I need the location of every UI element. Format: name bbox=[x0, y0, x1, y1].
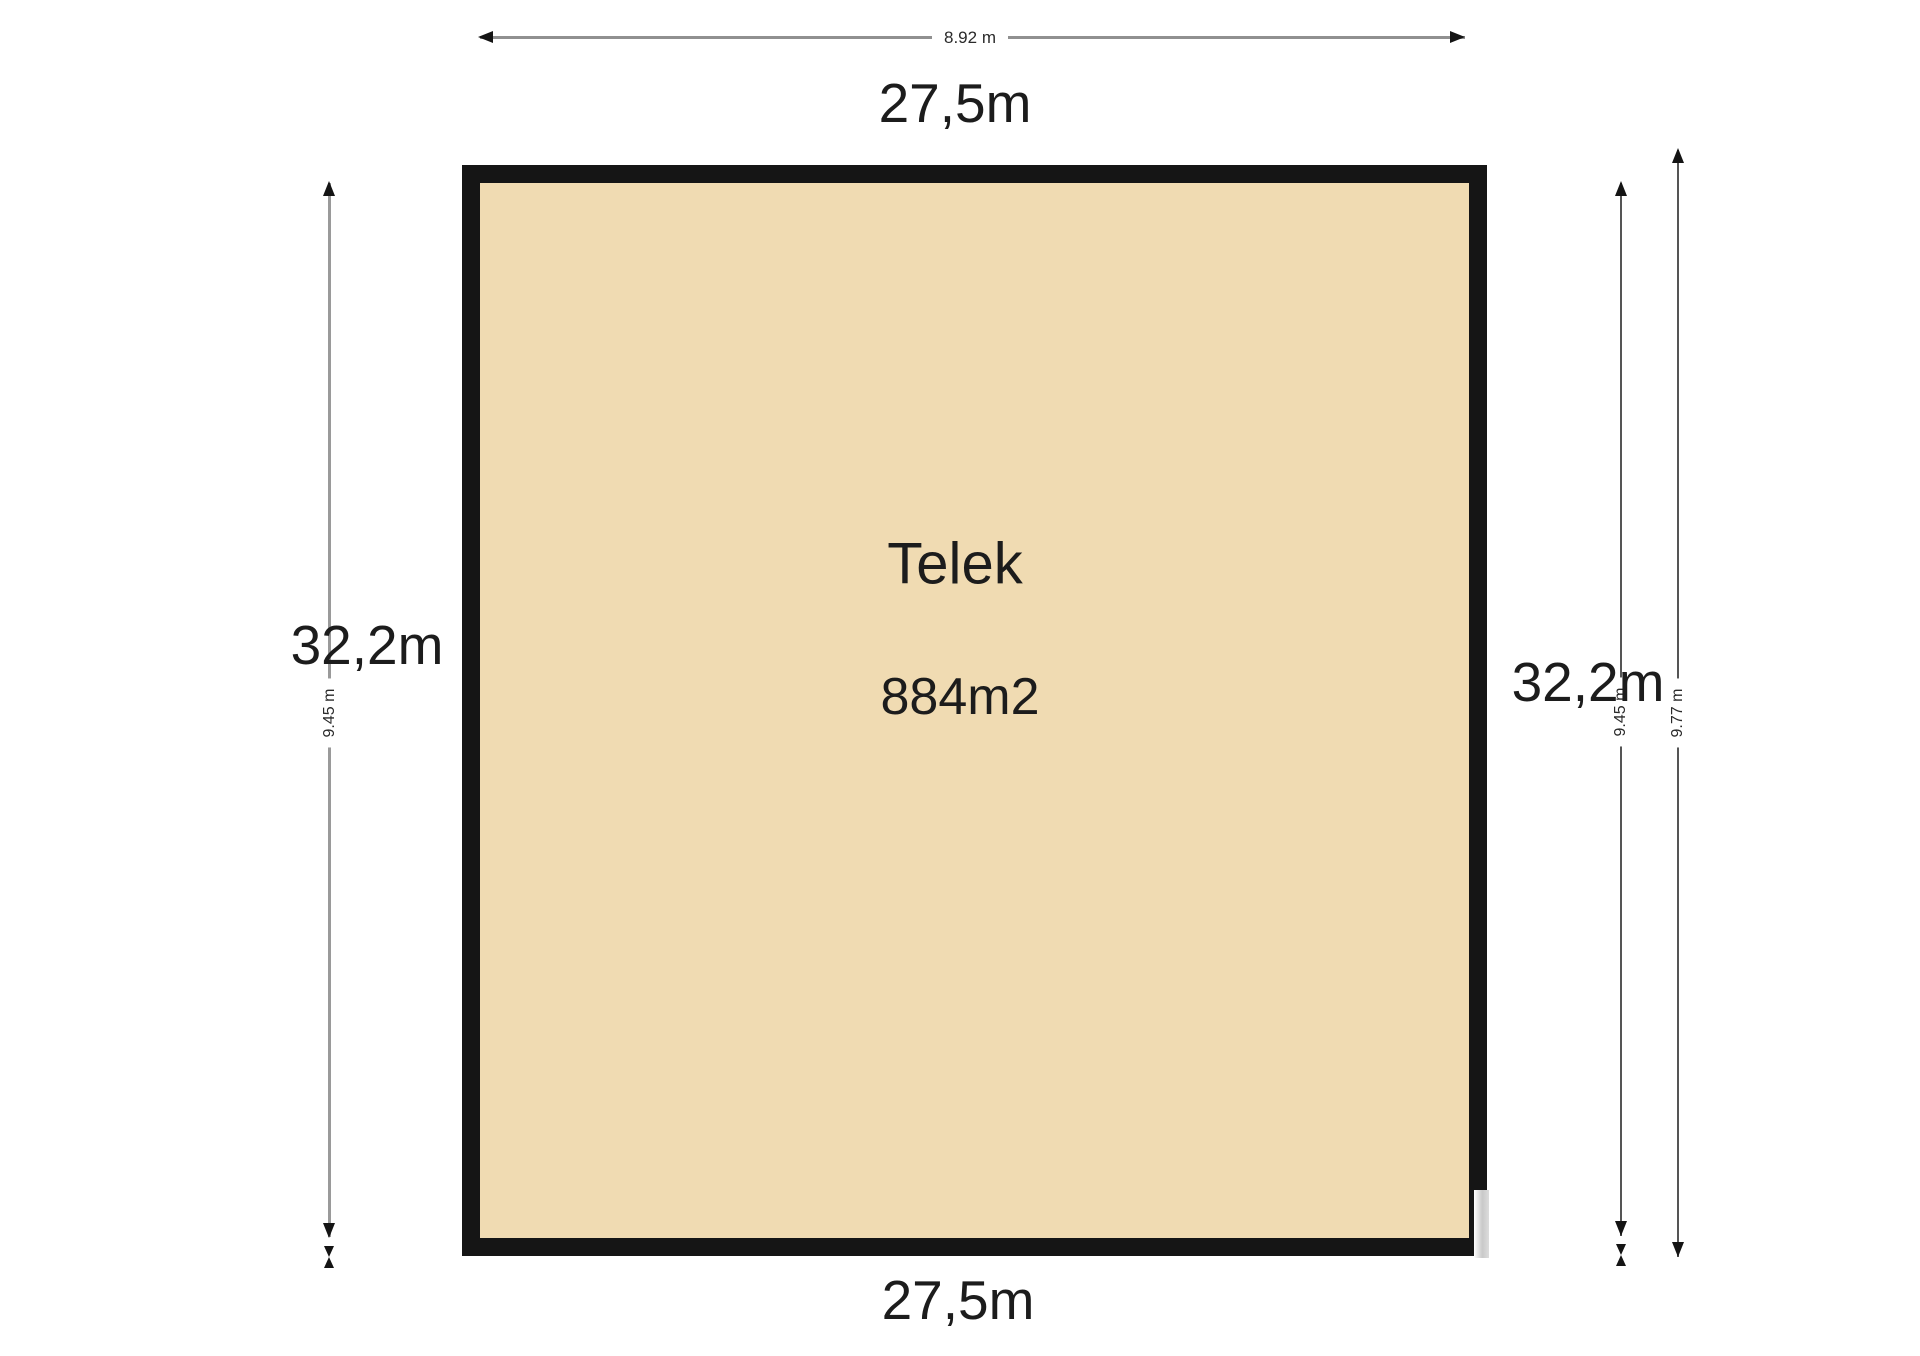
floorplan-canvas: Telek 884m2 8.92 m 27,5m 27,5m 32,2m 9.4… bbox=[0, 0, 1920, 1356]
top-segment-dimension-label: 8.92 m bbox=[932, 28, 1008, 48]
bottom-width-label: 27,5m bbox=[882, 1268, 1035, 1332]
border-notch-artifact bbox=[1474, 1190, 1489, 1258]
arrowhead-up-icon bbox=[1672, 148, 1684, 163]
arrowhead-up-icon bbox=[323, 181, 335, 196]
plot-area-label: 884m2 bbox=[881, 667, 1040, 727]
arrowhead-right-icon bbox=[1450, 31, 1465, 43]
plot-name-label: Telek bbox=[887, 531, 1022, 598]
arrowhead-up-icon bbox=[1615, 181, 1627, 196]
arrowhead-down-icon bbox=[323, 1223, 335, 1238]
arrowhead-left-icon bbox=[478, 31, 493, 43]
right-outer-sub-segment-label: 9.77 m bbox=[1669, 679, 1687, 748]
left-sub-segment-label: 9.45 m bbox=[321, 679, 339, 748]
arrowhead-down-icon bbox=[1615, 1221, 1627, 1236]
left-height-label: 32,2m bbox=[291, 613, 444, 677]
right-height-label: 32,2m bbox=[1512, 650, 1665, 714]
top-width-label: 27,5m bbox=[879, 71, 1032, 135]
arrowhead-down-icon bbox=[1672, 1242, 1684, 1257]
